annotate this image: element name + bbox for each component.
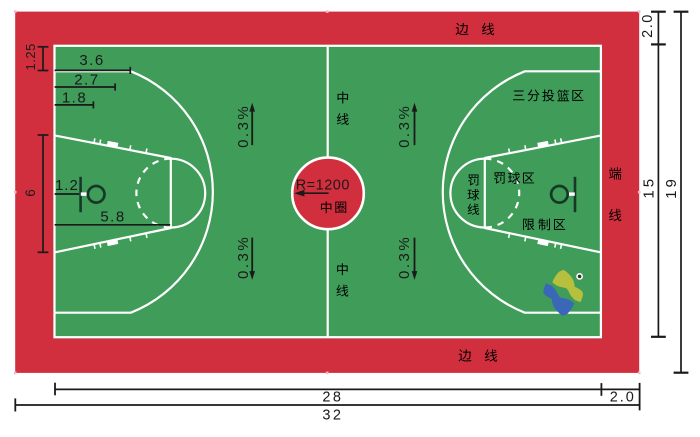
svg-text:1.8: 1.8 [62,90,87,107]
svg-text:1.2: 1.2 [55,177,79,194]
svg-text:6: 6 [23,189,38,197]
svg-text:15: 15 [640,176,657,199]
svg-text:0.3%: 0.3% [396,104,413,148]
svg-text:19: 19 [663,176,680,199]
svg-text:28: 28 [322,390,343,406]
svg-text:32: 32 [322,407,343,423]
svg-text:0.3%: 0.3% [235,104,252,148]
svg-text:0.3%: 0.3% [235,235,252,279]
svg-text:2.0: 2.0 [610,390,636,406]
svg-text:0.3%: 0.3% [396,235,413,279]
svg-text:1.25: 1.25 [23,43,38,70]
svg-text:5.8: 5.8 [100,208,125,225]
svg-text:3.6: 3.6 [79,52,104,69]
svg-text:2.0: 2.0 [640,13,656,38]
svg-text:2.7: 2.7 [74,72,99,89]
